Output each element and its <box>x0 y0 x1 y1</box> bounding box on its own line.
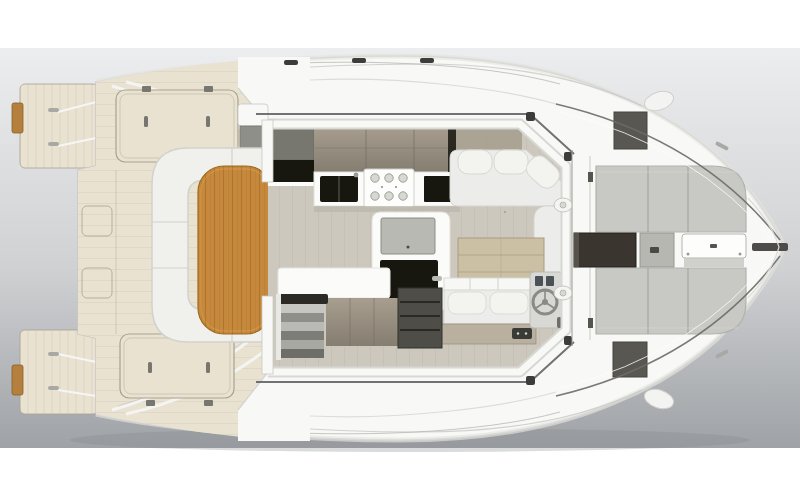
roof-track-fitting <box>284 60 298 65</box>
swim-platform-port <box>12 84 98 168</box>
hatch-hinge <box>146 400 155 406</box>
cleat <box>48 352 59 356</box>
lounge-back-pillow <box>494 150 528 174</box>
stair-tread <box>280 340 324 349</box>
bowsprit-anchor-roller <box>752 243 788 251</box>
counter-base-shadow <box>314 206 460 212</box>
cleat <box>48 386 59 390</box>
swim-platform-planks <box>20 330 98 414</box>
wall-corner-fitting <box>564 336 572 345</box>
helm-station <box>530 272 564 328</box>
fridge-handle <box>432 276 442 281</box>
switch-dot <box>517 332 519 334</box>
locker-hinge <box>687 253 690 256</box>
hatch-latch <box>148 362 152 373</box>
galley-counter-lip <box>268 182 314 186</box>
locker-hinge <box>739 253 742 256</box>
pad-hinge <box>588 318 593 328</box>
stair-tread <box>280 322 324 331</box>
lower-cabinets <box>326 298 398 346</box>
helm-instrument <box>535 276 543 286</box>
island-drain <box>407 246 410 249</box>
saloon-aft-bench <box>440 278 536 344</box>
cleat <box>48 142 59 146</box>
roof-track-fitting <box>352 58 366 63</box>
sunpad-starboard <box>588 268 746 334</box>
helm-instrument <box>546 276 554 286</box>
stairwell-rim <box>276 294 328 304</box>
wall-corner-fitting <box>526 112 535 121</box>
cockpit-lounge <box>152 148 276 342</box>
deck-hatch-starboard <box>120 334 234 406</box>
open-shelf-unit <box>398 288 442 348</box>
bench-pillow <box>448 292 486 314</box>
hatch-hinge <box>204 400 213 406</box>
locker-shadow <box>684 258 744 267</box>
foredeck-channel <box>574 233 746 267</box>
stove-knob <box>395 186 397 188</box>
faucet <box>354 173 359 178</box>
recess-lip <box>574 233 579 267</box>
cleat <box>48 108 59 112</box>
hatch-hinge <box>142 86 151 92</box>
deck-plan-rendering <box>0 0 800 500</box>
catamaran-deck-plan <box>0 0 800 500</box>
stove-knob <box>381 186 383 188</box>
stair-stringer <box>276 294 281 360</box>
door-post-aft <box>262 296 273 374</box>
door-post-forward <box>262 120 273 182</box>
swim-platform-starboard <box>12 330 98 414</box>
stair-tread <box>280 331 324 340</box>
lounge-back-cabinet <box>456 126 522 150</box>
wall-corner-fitting <box>564 152 572 161</box>
stair-tread <box>280 304 324 313</box>
wall-corner-fitting <box>526 376 535 385</box>
hatch-latch <box>144 116 148 127</box>
island-sink-panel <box>381 218 435 254</box>
bench-pillow <box>490 292 528 314</box>
stove <box>364 169 414 207</box>
walkway-recess <box>574 233 636 267</box>
stair-tread <box>280 313 324 322</box>
teak-boarding-step <box>12 103 23 133</box>
winch-drum <box>560 290 566 296</box>
console-switch-panel <box>512 328 532 339</box>
hatch-hinge <box>204 86 213 92</box>
nav-counter <box>278 268 390 298</box>
swim-platform-planks <box>20 84 98 168</box>
roof-track-fitting <box>420 58 434 63</box>
cockpit-teak-table <box>198 166 272 334</box>
step-box-latch <box>650 247 659 253</box>
sunpad-cushion <box>596 166 746 232</box>
sunpad-cushion <box>596 268 746 334</box>
anchor-locker-handle <box>710 244 717 248</box>
sunpad-port <box>588 166 746 232</box>
lounge-back-pillow <box>458 150 492 174</box>
winch-drum <box>560 202 566 208</box>
galley-tall-cabinet <box>268 126 314 160</box>
galley-upper-cabinets <box>314 126 456 172</box>
pad-hinge <box>588 172 593 182</box>
counter-appliance <box>424 176 452 202</box>
hatch-latch <box>206 362 210 373</box>
hatch-lid <box>120 334 234 398</box>
stair-tread <box>280 349 324 358</box>
galley-open-shelf <box>268 160 314 182</box>
switch-dot <box>525 332 527 334</box>
teak-boarding-step <box>12 365 23 395</box>
hatch-latch <box>206 116 210 127</box>
